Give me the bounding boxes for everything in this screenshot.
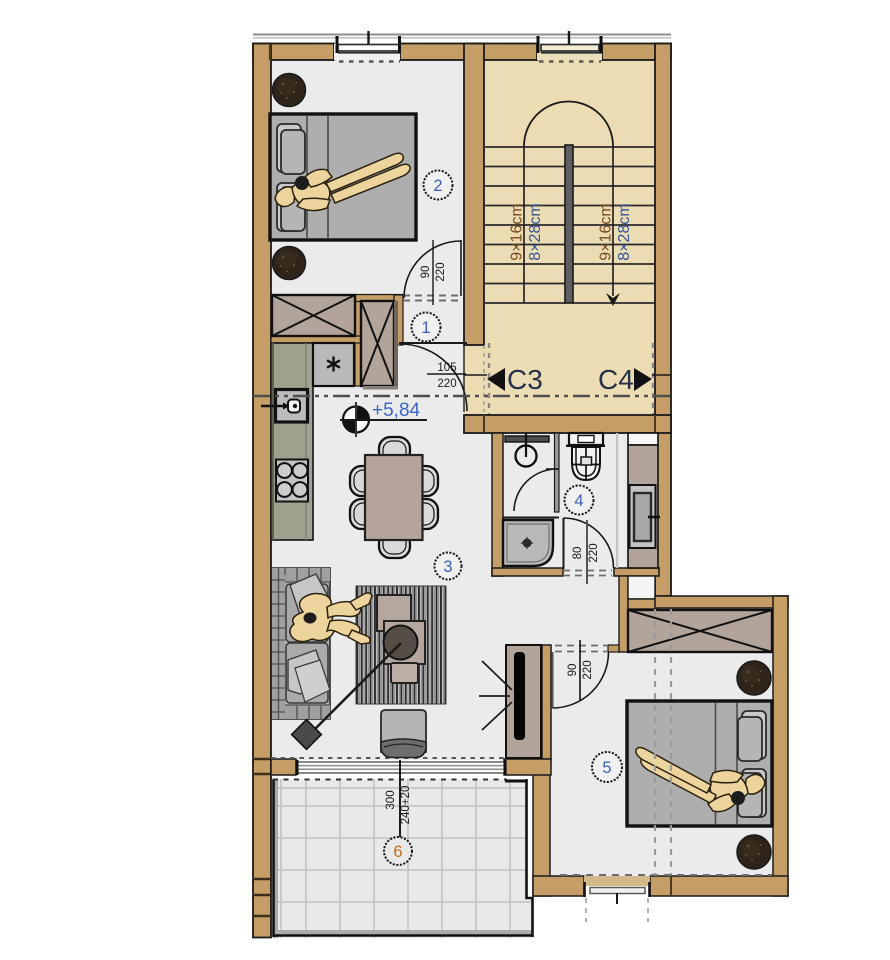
svg-text:8×28cm: 8×28cm [527, 203, 544, 260]
svg-text:220: 220 [582, 660, 594, 679]
svg-text:9×16cm: 9×16cm [509, 203, 526, 260]
svg-text:8×28cm: 8×28cm [616, 203, 633, 260]
svg-text:C3: C3 [507, 364, 543, 395]
svg-text:3: 3 [443, 558, 452, 576]
svg-text:6: 6 [393, 843, 402, 861]
svg-text:4: 4 [574, 492, 583, 510]
svg-text:90: 90 [420, 266, 432, 279]
svg-text:220: 220 [437, 378, 456, 390]
svg-text:90: 90 [567, 664, 579, 677]
svg-text:5: 5 [602, 759, 611, 777]
svg-text:C4: C4 [598, 364, 634, 395]
svg-text:300: 300 [385, 790, 397, 809]
svg-text:220: 220 [435, 262, 447, 281]
svg-text:+5,84: +5,84 [372, 400, 421, 421]
svg-text:220: 220 [588, 543, 600, 562]
svg-text:240+20: 240+20 [400, 786, 412, 825]
svg-text:2: 2 [433, 177, 442, 195]
svg-text:80: 80 [572, 547, 584, 560]
svg-text:1: 1 [421, 319, 430, 337]
svg-text:9×16cm: 9×16cm [598, 203, 615, 260]
svg-text:105: 105 [437, 362, 456, 374]
